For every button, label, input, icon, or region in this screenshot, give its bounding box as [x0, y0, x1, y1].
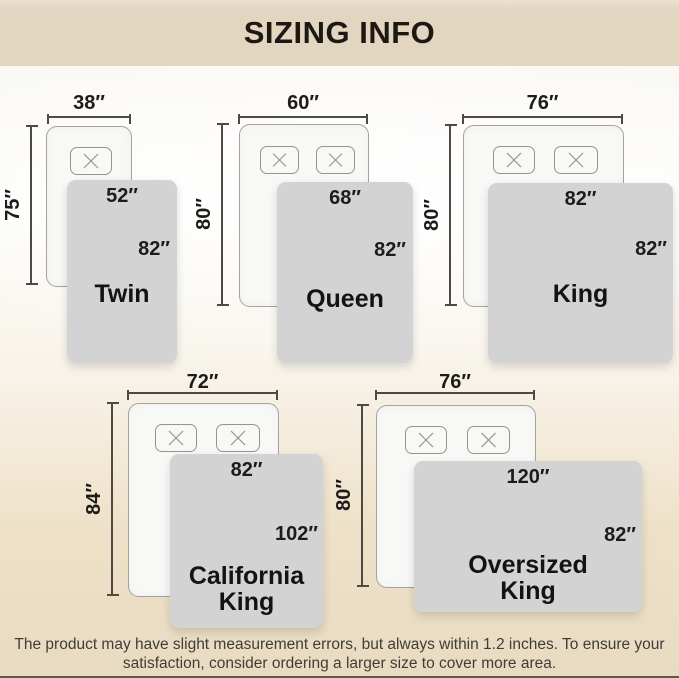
disclaimer-text: The product may have slight measurement …	[0, 636, 679, 673]
king-bed-width-dimension-line	[463, 116, 622, 118]
pillow-x-icon	[216, 424, 260, 452]
twin-bed-length-label: 75″	[0, 165, 26, 245]
twin-blanket-width-label: 52″	[67, 185, 177, 208]
california-king-bed-length-label: 84″	[81, 459, 107, 539]
pillow-x-icon	[155, 424, 197, 452]
king-blanket-width-label: 82″	[488, 188, 673, 211]
pillow-x-icon	[493, 146, 535, 174]
oversized-king-blanket-width-label: 120″	[414, 466, 642, 489]
pillow-x-icon	[70, 147, 112, 175]
king-bed-width-label: 76″	[463, 91, 622, 115]
california-king-blanket-width-label: 82″	[170, 459, 323, 482]
king-size-name: King	[498, 281, 663, 307]
twin-size-name: Twin	[77, 281, 167, 307]
king-blanket-length-label: 82″	[635, 238, 667, 261]
queen-bed-width-label: 60″	[239, 91, 367, 115]
queen-bed-length-label: 80″	[191, 174, 217, 254]
queen-blanket-length-label: 82″	[374, 239, 406, 262]
california-king-blanket-length-label: 102″	[275, 523, 318, 546]
twin-bed-length-dimension-line	[30, 126, 32, 284]
king-bed-length-dimension-line	[449, 125, 451, 305]
california-king-blanket: 82″ 102″ California King	[170, 454, 323, 628]
sizing-info-panel: SIZING INFO 38″ 75″ 52″ 82″ Twin 60″ 80″	[0, 0, 679, 678]
oversized-king-bed-length-dimension-line	[361, 405, 363, 586]
oversized-king-size-name: Oversized King	[454, 552, 602, 604]
disclaimer-line-1: The product may have slight measurement …	[0, 636, 679, 655]
king-blanket: 82″ 82″ King	[488, 183, 673, 363]
pillow-x-icon	[260, 146, 299, 174]
queen-blanket-width-label: 68″	[277, 187, 413, 210]
queen-size-name: Queen	[287, 286, 403, 312]
twin-bed-width-label: 38″	[48, 91, 130, 115]
california-king-bed-length-dimension-line	[111, 403, 113, 595]
queen-bed-width-dimension-line	[239, 116, 367, 118]
king-bed-length-label: 80″	[419, 175, 445, 255]
twin-blanket-length-label: 82″	[138, 238, 170, 261]
pillow-x-icon	[405, 426, 447, 454]
oversized-king-blanket-length-label: 82″	[604, 524, 636, 547]
oversized-king-bed-width-label: 76″	[376, 370, 534, 394]
pillow-x-icon	[554, 146, 598, 174]
twin-blanket: 52″ 82″ Twin	[67, 180, 177, 363]
pillow-x-icon	[316, 146, 355, 174]
oversized-king-blanket: 120″ 82″ Oversized King	[414, 461, 642, 612]
twin-bed-width-dimension-line	[48, 116, 130, 118]
california-king-bed-width-label: 72″	[128, 370, 277, 394]
queen-bed-length-dimension-line	[221, 124, 223, 305]
california-king-bed-width-dimension-line	[128, 392, 277, 394]
queen-blanket: 68″ 82″ Queen	[277, 182, 413, 363]
oversized-king-bed-width-dimension-line	[376, 392, 534, 394]
disclaimer-line-2: satisfaction, consider ordering a larger…	[0, 655, 679, 674]
california-king-size-name: California King	[180, 563, 313, 615]
pillow-x-icon	[467, 426, 510, 454]
oversized-king-bed-length-label: 80″	[331, 455, 357, 535]
